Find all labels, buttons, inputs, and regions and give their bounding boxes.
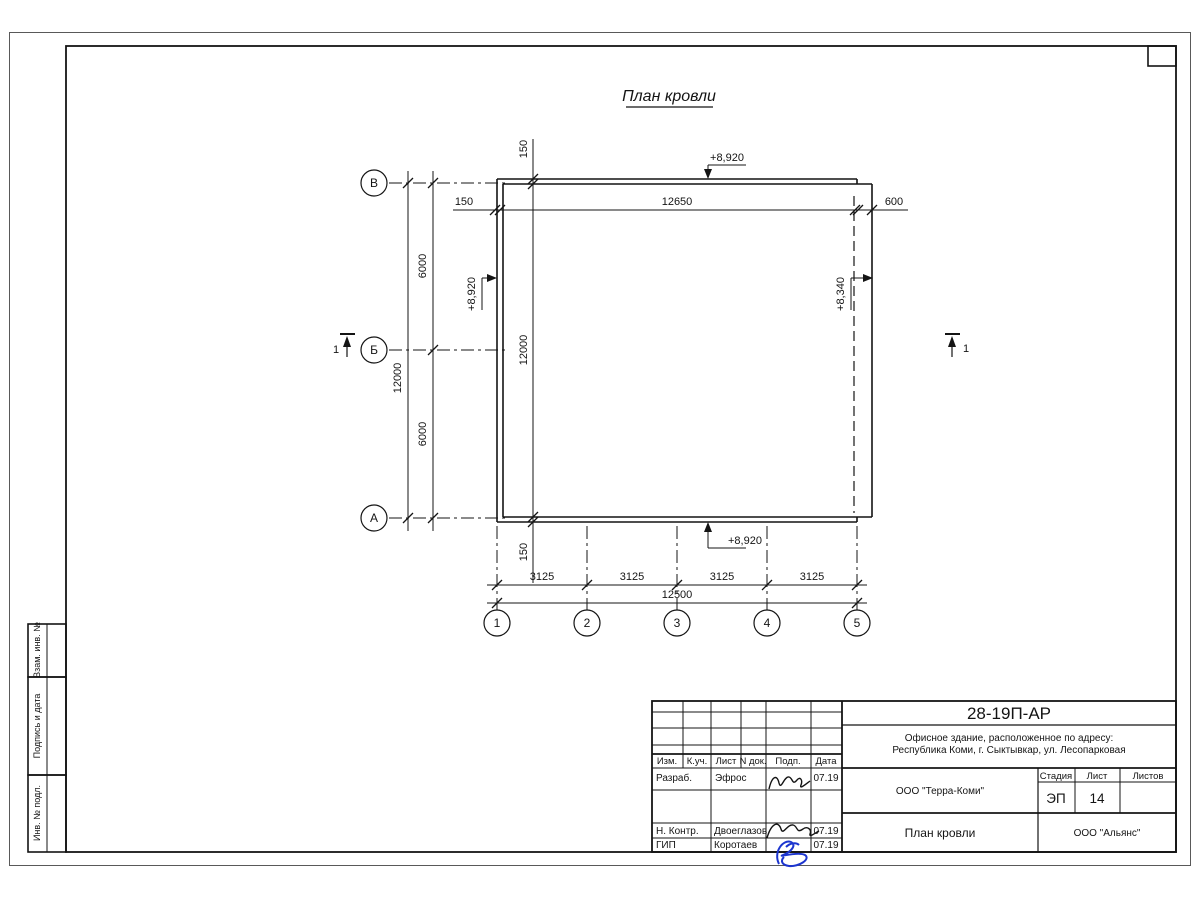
tb-designer-company: ООО "Терра-Коми" xyxy=(896,786,985,797)
side-stamps: Взам. инв. № Подпись и дата Инв. № подл. xyxy=(28,622,66,852)
axis-label-2: 2 xyxy=(584,616,591,630)
tb-role-razrab: Разраб. xyxy=(656,772,692,784)
tb-stage-label: Стадия xyxy=(1040,771,1072,782)
section-label-left: 1 xyxy=(333,344,339,356)
roof-parapet-and-overhang xyxy=(503,179,872,522)
axis-label-3: 3 xyxy=(674,616,681,630)
tb-col-podp: Подп. xyxy=(775,756,800,767)
dim-150-chain-bottom: 150 xyxy=(518,543,530,561)
dim-12000-chain: 12000 xyxy=(518,335,530,366)
corner-doc-box xyxy=(1148,46,1176,66)
dim-150-top: 150 xyxy=(455,196,473,208)
dim-12650: 12650 xyxy=(662,196,693,208)
signature-razrab xyxy=(769,777,810,789)
dim-3125-1: 3125 xyxy=(530,571,554,583)
tb-sheet-label: Лист xyxy=(1087,771,1108,782)
dim-6000-lower: 6000 xyxy=(417,422,429,446)
axis-label-4: 4 xyxy=(764,616,771,630)
section-label-right: 1 xyxy=(963,343,969,355)
stamp-vzam-inv: Взам. инв. № xyxy=(32,622,42,678)
tb-contractor: ООО "Альянс" xyxy=(1074,828,1141,839)
tb-sheet-value: 14 xyxy=(1089,791,1105,806)
tb-col-izm: Изм. xyxy=(657,756,677,767)
signature-gip-blue xyxy=(777,842,806,867)
tb-name-korotaev: Коротаев xyxy=(714,840,757,851)
tb-date-razrab: 07.19 xyxy=(813,773,838,784)
tb-role-gip: ГИП xyxy=(656,840,676,851)
elevation-arrow-right xyxy=(487,274,497,282)
roof-outer-edge xyxy=(497,179,857,522)
tb-sheets-label: Листов xyxy=(1133,771,1164,782)
inner-frame xyxy=(66,46,1176,852)
tb-date-gip: 07.19 xyxy=(813,840,838,851)
dim-600: 600 xyxy=(885,196,903,208)
elevation-arrow-down xyxy=(704,169,712,179)
drawing-title: План кровли xyxy=(622,88,716,105)
axis-label-1: 1 xyxy=(494,616,501,630)
axis-label-5: 5 xyxy=(854,616,861,630)
tb-name-dvoeglazov: Двоеглазов xyxy=(714,826,767,837)
tb-address-line1: Офисное здание, расположенное по адресу: xyxy=(905,732,1114,744)
drawing-caption: План кровли xyxy=(622,88,716,107)
tb-address-line2: Республика Коми, г. Сыктывкар, ул. Лесоп… xyxy=(892,744,1125,756)
dim-6000-upper: 6000 xyxy=(417,254,429,278)
axis-label-V: В xyxy=(370,176,378,190)
dim-3125-4: 3125 xyxy=(800,571,824,583)
elevation-bottom: +8,920 xyxy=(728,535,762,547)
roof-outline xyxy=(497,179,872,522)
stamp-inv-podl: Инв. № подл. xyxy=(32,785,42,841)
tb-col-data: Дата xyxy=(815,756,837,767)
axis-label-B: Б xyxy=(370,343,378,357)
tb-col-kuch: К.уч. xyxy=(687,756,708,767)
elevation-right: +8,340 xyxy=(835,277,847,311)
dim-3125-2: 3125 xyxy=(620,571,644,583)
tb-stage-value: ЭП xyxy=(1046,791,1065,806)
tb-col-list: Лист xyxy=(716,756,737,767)
stamp-podpis-data: Подпись и дата xyxy=(32,694,42,759)
tb-name-efros: Эфрос xyxy=(715,772,747,784)
dim-150-chain-top: 150 xyxy=(518,140,530,158)
tb-doc-number: 28-19П-АР xyxy=(967,704,1051,723)
title-block: Изм. К.уч. Лист N док. Подп. Дата Разраб… xyxy=(652,701,1176,866)
tb-sheet-title: План кровли xyxy=(905,826,976,840)
dim-3125-3: 3125 xyxy=(710,571,734,583)
tb-col-ndok: N док. xyxy=(739,756,766,767)
axis-label-A: А xyxy=(370,511,378,525)
dim-12000-total: 12000 xyxy=(392,363,404,394)
dimensions: 150 12650 600 150 12000 150 6000 6000 12… xyxy=(392,139,908,608)
axis-grid: В Б А 1 2 3 4 5 xyxy=(361,170,870,636)
tb-role-ncontr: Н. Контр. xyxy=(656,826,699,837)
drawing-sheet: Взам. инв. № Подпись и дата Инв. № подл.… xyxy=(0,0,1200,900)
dim-12500: 12500 xyxy=(662,589,693,601)
elevation-top: +8,920 xyxy=(710,152,744,164)
section-marks: 1 1 xyxy=(333,334,969,357)
elevation-arrow-up xyxy=(704,522,712,532)
elevation-left: +8,920 xyxy=(466,277,478,311)
